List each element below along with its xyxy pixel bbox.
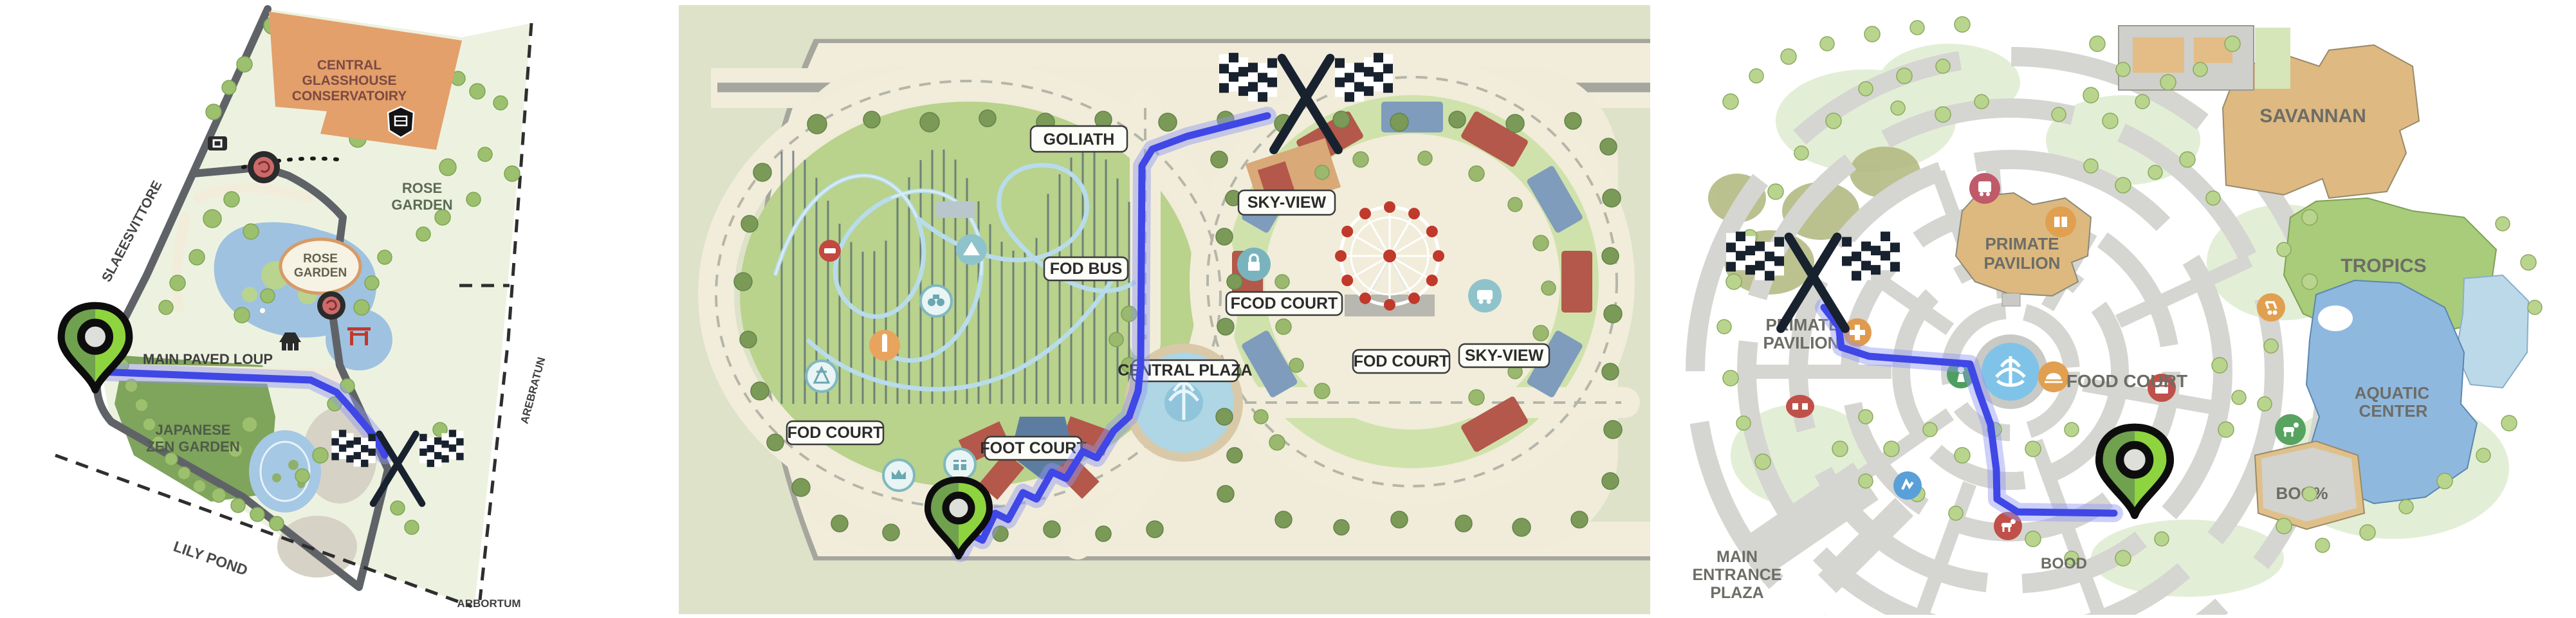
primate-pavilion-west-label: PAVILION	[1763, 333, 1840, 352]
sky-view-east-label: SKY-VIEW	[1465, 347, 1544, 365]
conservatory-label: CONSERVATOIRY	[292, 89, 407, 104]
primate-pavilion-label: PRIMATE	[1985, 234, 2059, 253]
aquatic-center-label: AQUATIC	[2355, 383, 2430, 403]
rose-roundabout-icon	[248, 151, 280, 183]
rose-medallion-icon	[317, 291, 345, 320]
main-entrance-label: ENTRANCE	[1693, 566, 1782, 584]
conservatory-label: GLASSHOUSE	[302, 73, 396, 88]
rose-garden-east-label: GARDEN	[391, 197, 452, 213]
boc-label: BOC%	[2276, 484, 2328, 503]
stroller-icon	[2257, 293, 2285, 322]
screenshot-canvas: CENTRAL GLASSHOUSE CONSERVATOIRY ROSE GA…	[0, 0, 2576, 618]
gift-icon	[944, 449, 975, 480]
fcod-court-label: FCOD COURT	[1231, 295, 1338, 313]
carousel-icon	[806, 361, 837, 392]
bus-icon	[1969, 173, 2000, 204]
boc-building: BOC%	[2255, 441, 2364, 529]
aquatic-center-label: CENTER	[2359, 401, 2428, 421]
rose-garden-east-label: ROSE	[402, 180, 442, 196]
restroom-icon	[1786, 395, 1814, 418]
sign-icon	[819, 240, 841, 262]
main-entrance-label: PLAZA	[1710, 584, 1763, 602]
crown-icon	[883, 460, 914, 491]
gift-icon	[2045, 206, 2076, 237]
food-court-label: FOOD COURT	[2066, 371, 2187, 391]
mountain-icon	[956, 234, 987, 265]
botanical-garden-map: CENTRAL GLASSHOUSE CONSERVATOIRY ROSE GA…	[50, 5, 650, 615]
rose-garden-oval-label: ROSE	[303, 252, 338, 266]
primate-pavilion-label: PAVILION	[1984, 253, 2061, 273]
main-entrance-label: MAIN	[1716, 548, 1758, 566]
theme-park-map: GOLIATH SKY-VIEW FOD BUS FCOD COURT CENT…	[679, 5, 1650, 614]
binoculars-icon	[921, 286, 952, 316]
fod-bus-label: FOD BUS	[1050, 260, 1123, 278]
sky-view-north-label: SKY-VIEW	[1247, 194, 1327, 212]
petting-zoo-icon	[2275, 414, 2306, 445]
rose-garden-oval: ROSE GARDEN	[281, 239, 360, 293]
monument-icon	[208, 136, 227, 150]
zen-garden-label: JAPANESE	[156, 422, 231, 438]
fod-court-west-label: FOD COURT	[787, 424, 883, 442]
blue-info-icon	[1893, 471, 1922, 500]
shield-emblem-icon	[388, 107, 414, 138]
gravel-area	[277, 516, 357, 577]
tower-icon	[869, 330, 900, 361]
bood-label: BOOD	[2041, 555, 2087, 572]
rose-garden-oval-label: GARDEN	[294, 266, 347, 280]
lock-icon	[1237, 248, 1271, 281]
fod-court-east-label: FOD COURT	[1354, 352, 1449, 370]
zoo-map: SAVANNAN TROPICS PRIMATE PAVILION AQUATI…	[1673, 5, 2573, 615]
bus-icon	[1468, 279, 1502, 313]
boundary-corner-label: ARBORTUM	[457, 597, 520, 610]
savannah-label: SAVANNAN	[2259, 105, 2366, 127]
tropics-label: TROPICS	[2341, 255, 2426, 277]
conservatory-label: CENTRAL	[317, 58, 382, 73]
entrance-building	[2119, 26, 2290, 90]
zen-garden-label: ZEN GARDEN	[146, 439, 239, 455]
main-paved-loup-label: MAIN PAVED LOUP	[143, 351, 273, 367]
food-icon	[2038, 361, 2069, 392]
goliath-label: GOLIATH	[1044, 131, 1115, 149]
